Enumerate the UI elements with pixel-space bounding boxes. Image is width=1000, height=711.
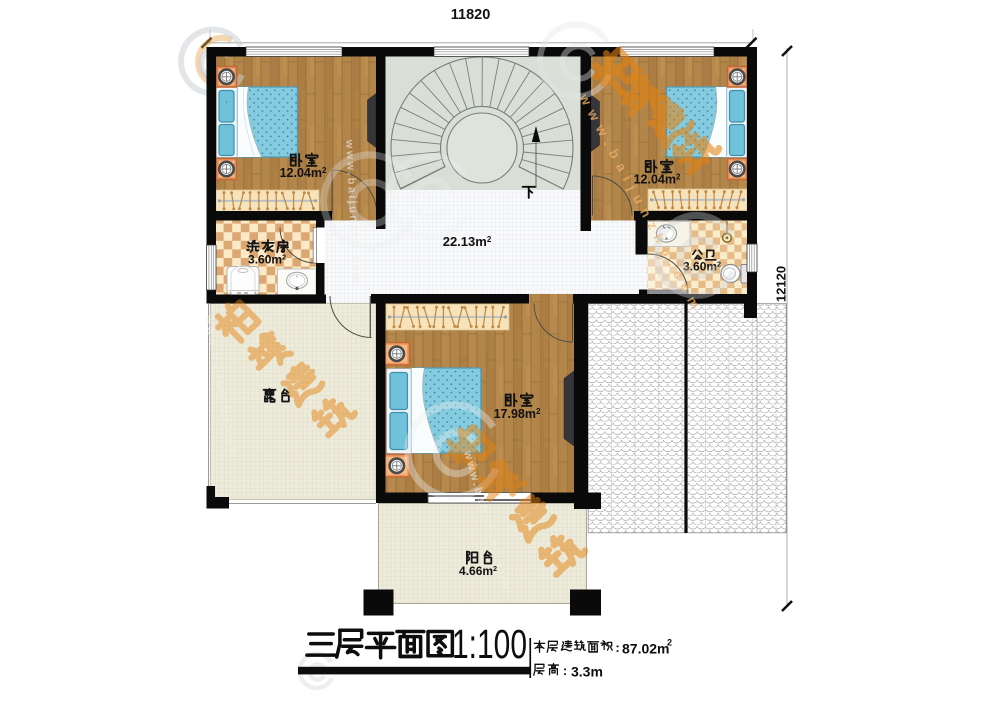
svg-text:87.02m: 87.02m xyxy=(622,641,669,657)
svg-text:3.3m: 3.3m xyxy=(571,664,603,680)
svg-text::: : xyxy=(563,663,567,678)
svg-text:12120: 12120 xyxy=(774,266,789,302)
svg-text::: : xyxy=(615,640,619,655)
svg-text:17.98m2: 17.98m2 xyxy=(494,407,541,421)
svg-text:12.04m2: 12.04m2 xyxy=(280,166,327,180)
svg-text:3.60m2: 3.60m2 xyxy=(248,253,286,267)
svg-text:12.04m2: 12.04m2 xyxy=(634,173,681,187)
svg-text:1:100: 1:100 xyxy=(452,621,527,667)
svg-text:22.13m2: 22.13m2 xyxy=(443,234,492,249)
svg-text:4.66m2: 4.66m2 xyxy=(459,564,497,578)
svg-text:2: 2 xyxy=(667,638,672,648)
svg-text:11820: 11820 xyxy=(451,7,491,23)
